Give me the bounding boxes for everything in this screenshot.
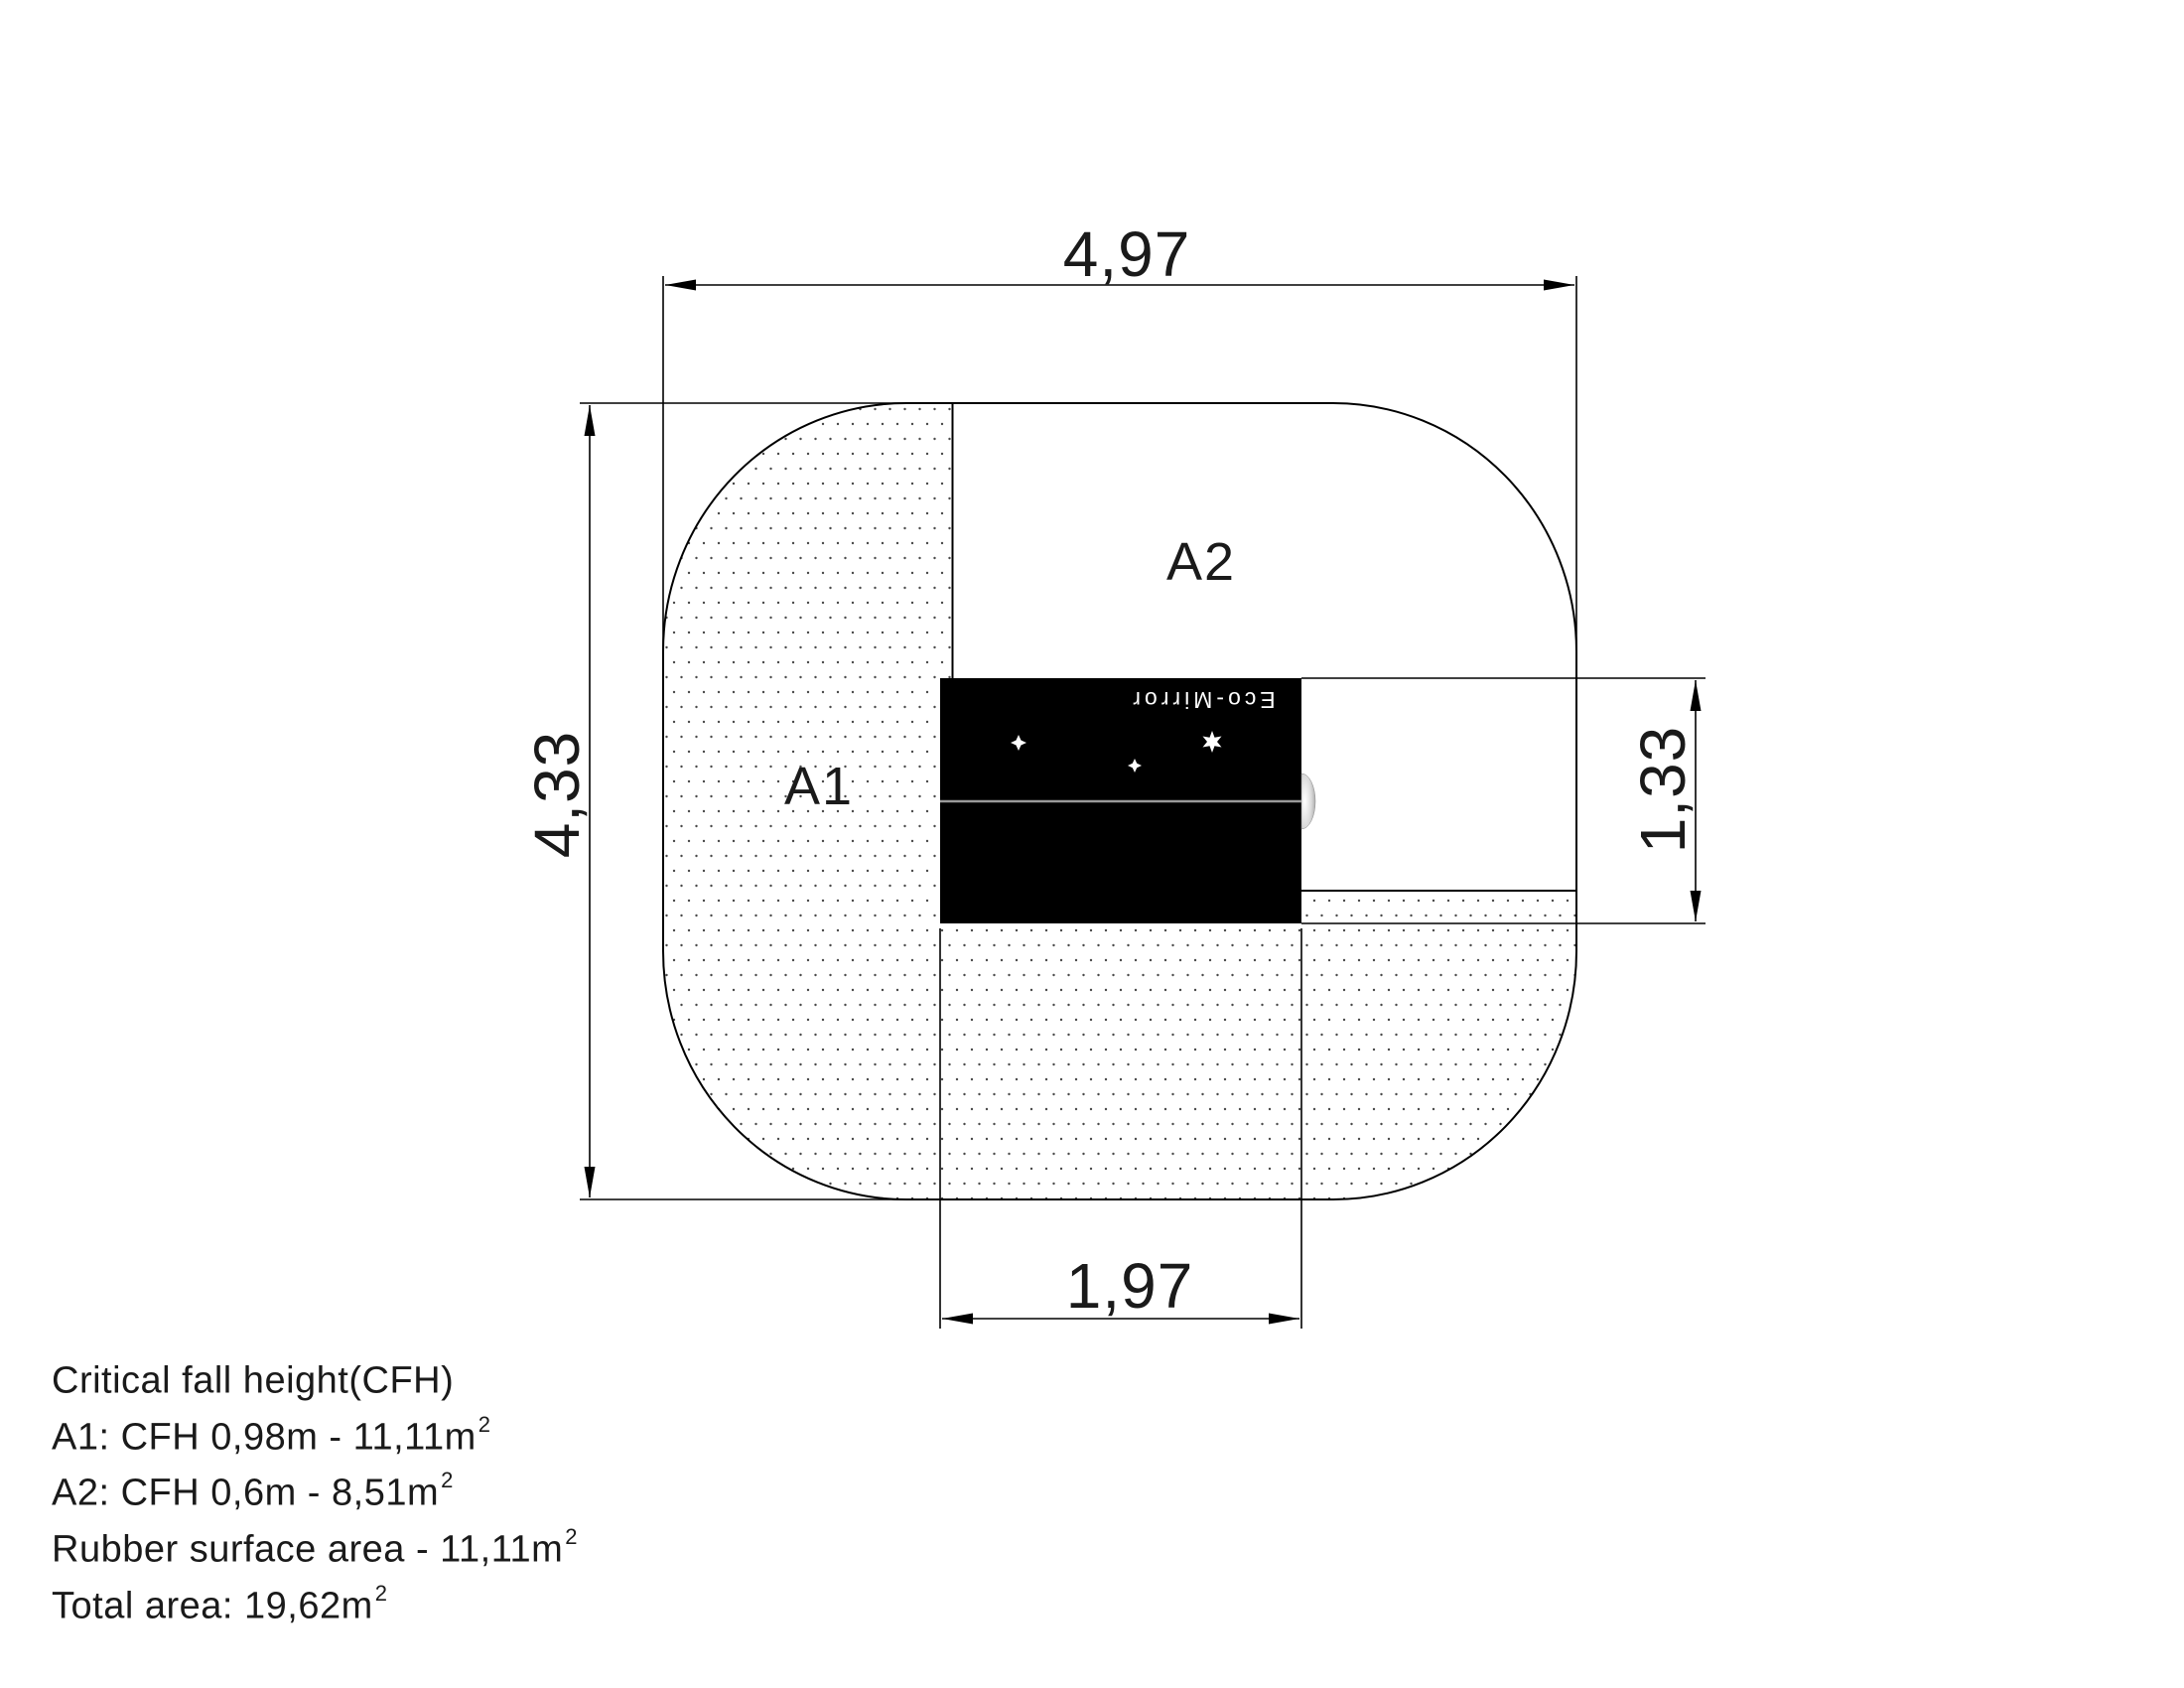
stipple-zone-a1-right-strip <box>1301 891 1576 923</box>
superscript: 2 <box>441 1468 454 1492</box>
cfh-a2-note: A2: CFH 0,6m - 8,51m2 <box>52 1461 578 1517</box>
zone-a1-label: A1 <box>784 757 854 816</box>
cfh-title: Critical fall height(CFH) <box>52 1348 578 1405</box>
dimension-value-top: 4,97 <box>1063 218 1191 290</box>
cfh-a1-text: A1: CFH 0,98m - 11,11m <box>52 1416 477 1458</box>
arrowhead-icon <box>585 1167 596 1197</box>
cfh-a2-text: A2: CFH 0,6m - 8,51m <box>52 1473 439 1514</box>
cfh-a1-note: A1: CFH 0,98m - 11,11m2 <box>52 1405 578 1462</box>
superscript: 2 <box>375 1581 388 1606</box>
zone-a2-label: A2 <box>1166 532 1236 592</box>
superscript: 2 <box>565 1524 578 1549</box>
cfh-title-text: Critical fall height(CFH) <box>52 1360 454 1402</box>
arrowhead-icon <box>1269 1314 1299 1325</box>
dimension-value-left: 4,33 <box>521 731 593 859</box>
arrowhead-icon <box>942 1314 973 1325</box>
arrowhead-icon <box>585 405 596 436</box>
equipment-panel: Eco-Mirror <box>940 678 1315 923</box>
stipple-zone-a1-bottom <box>953 923 1576 1199</box>
equipment-brand-text: Eco-Mirror <box>1129 687 1275 713</box>
rubber-area-note: Rubber surface area - 11,11m2 <box>52 1517 578 1574</box>
dimension-value-right: 1,33 <box>1627 726 1699 854</box>
total-area-text: Total area: 19,62m <box>52 1585 373 1626</box>
total-area-note: Total area: 19,62m2 <box>52 1574 578 1630</box>
superscript: 2 <box>478 1412 491 1437</box>
dimension-value-bottom: 1,97 <box>1066 1250 1194 1322</box>
arrowhead-icon <box>1691 891 1702 921</box>
rubber-area-text: Rubber surface area - 11,11m <box>52 1529 563 1571</box>
arrowhead-icon <box>1544 280 1574 291</box>
arrowhead-icon <box>1691 680 1702 711</box>
equipment-brand-label: Eco-Mirror <box>1129 687 1275 713</box>
arrowhead-icon <box>665 280 696 291</box>
cfh-notes: Critical fall height(CFH) A1: CFH 0,98m … <box>52 1348 578 1629</box>
